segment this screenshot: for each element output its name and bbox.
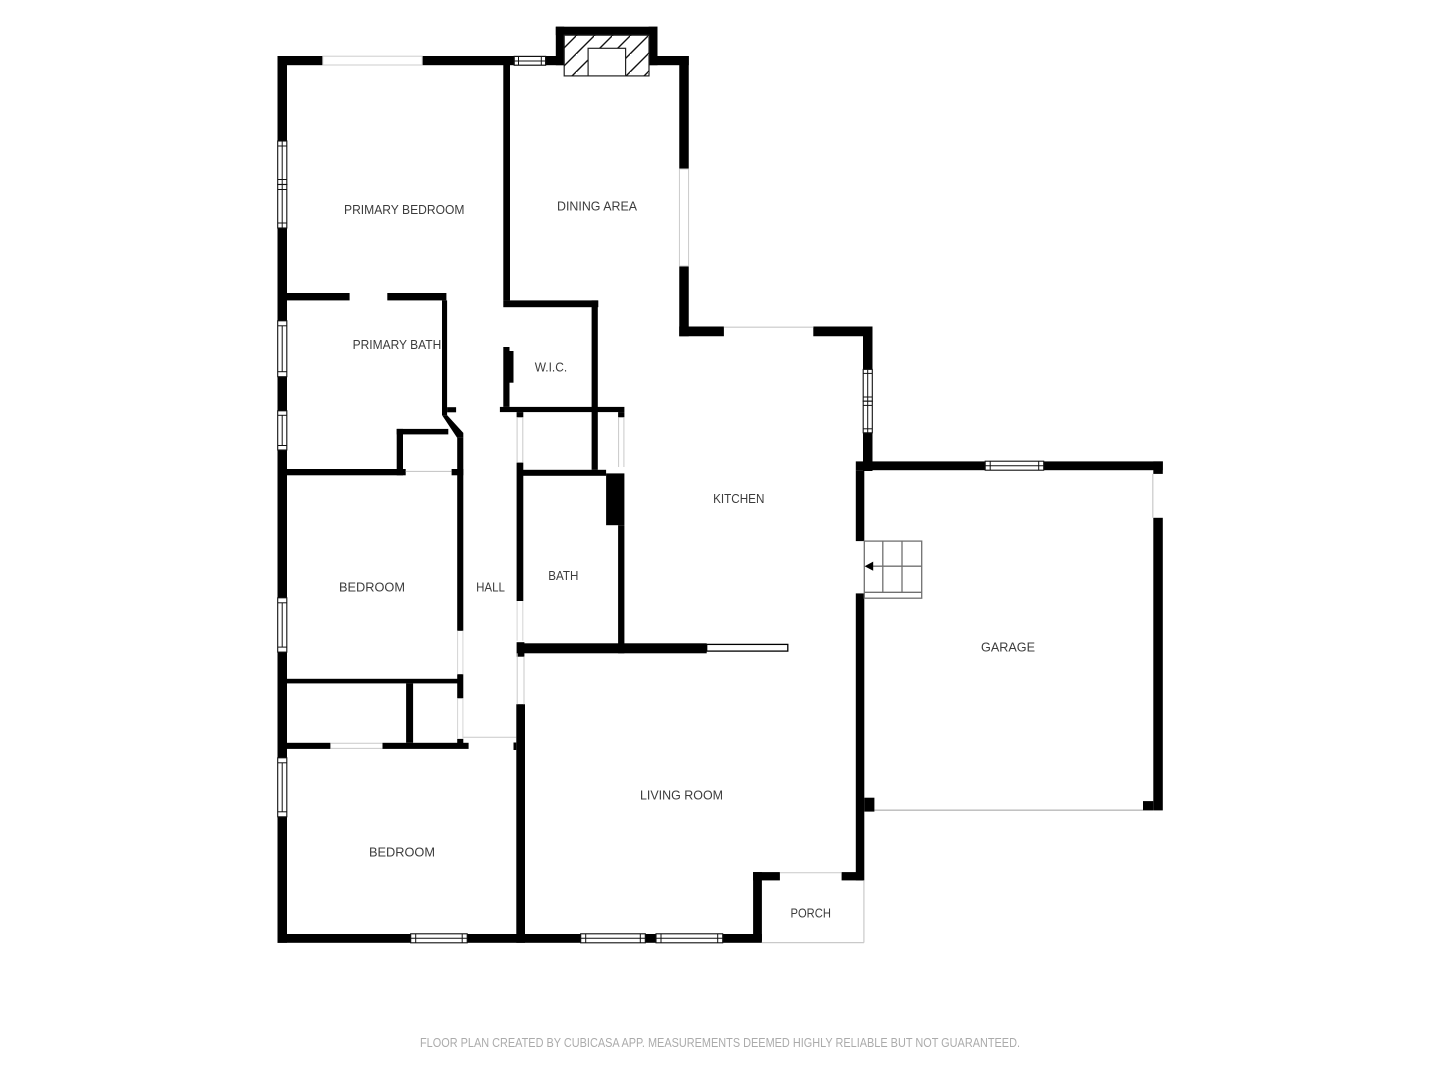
svg-text:BEDROOM: BEDROOM: [339, 580, 405, 595]
svg-text:PRIMARY BATH: PRIMARY BATH: [353, 337, 442, 352]
svg-text:HALL: HALL: [476, 580, 505, 595]
svg-text:DINING AREA: DINING AREA: [557, 199, 637, 214]
svg-text:GARAGE: GARAGE: [981, 640, 1035, 655]
svg-text:W.I.C.: W.I.C.: [535, 360, 568, 375]
svg-text:PORCH: PORCH: [791, 906, 831, 921]
svg-text:BATH: BATH: [548, 568, 578, 583]
svg-text:BEDROOM: BEDROOM: [369, 845, 435, 860]
svg-text:LIVING ROOM: LIVING ROOM: [640, 788, 723, 803]
svg-text:KITCHEN: KITCHEN: [713, 491, 764, 506]
svg-text:FLOOR PLAN CREATED BY CUBICASA: FLOOR PLAN CREATED BY CUBICASA APP. MEAS…: [420, 1036, 1020, 1050]
svg-text:PRIMARY BEDROOM: PRIMARY BEDROOM: [344, 202, 465, 217]
